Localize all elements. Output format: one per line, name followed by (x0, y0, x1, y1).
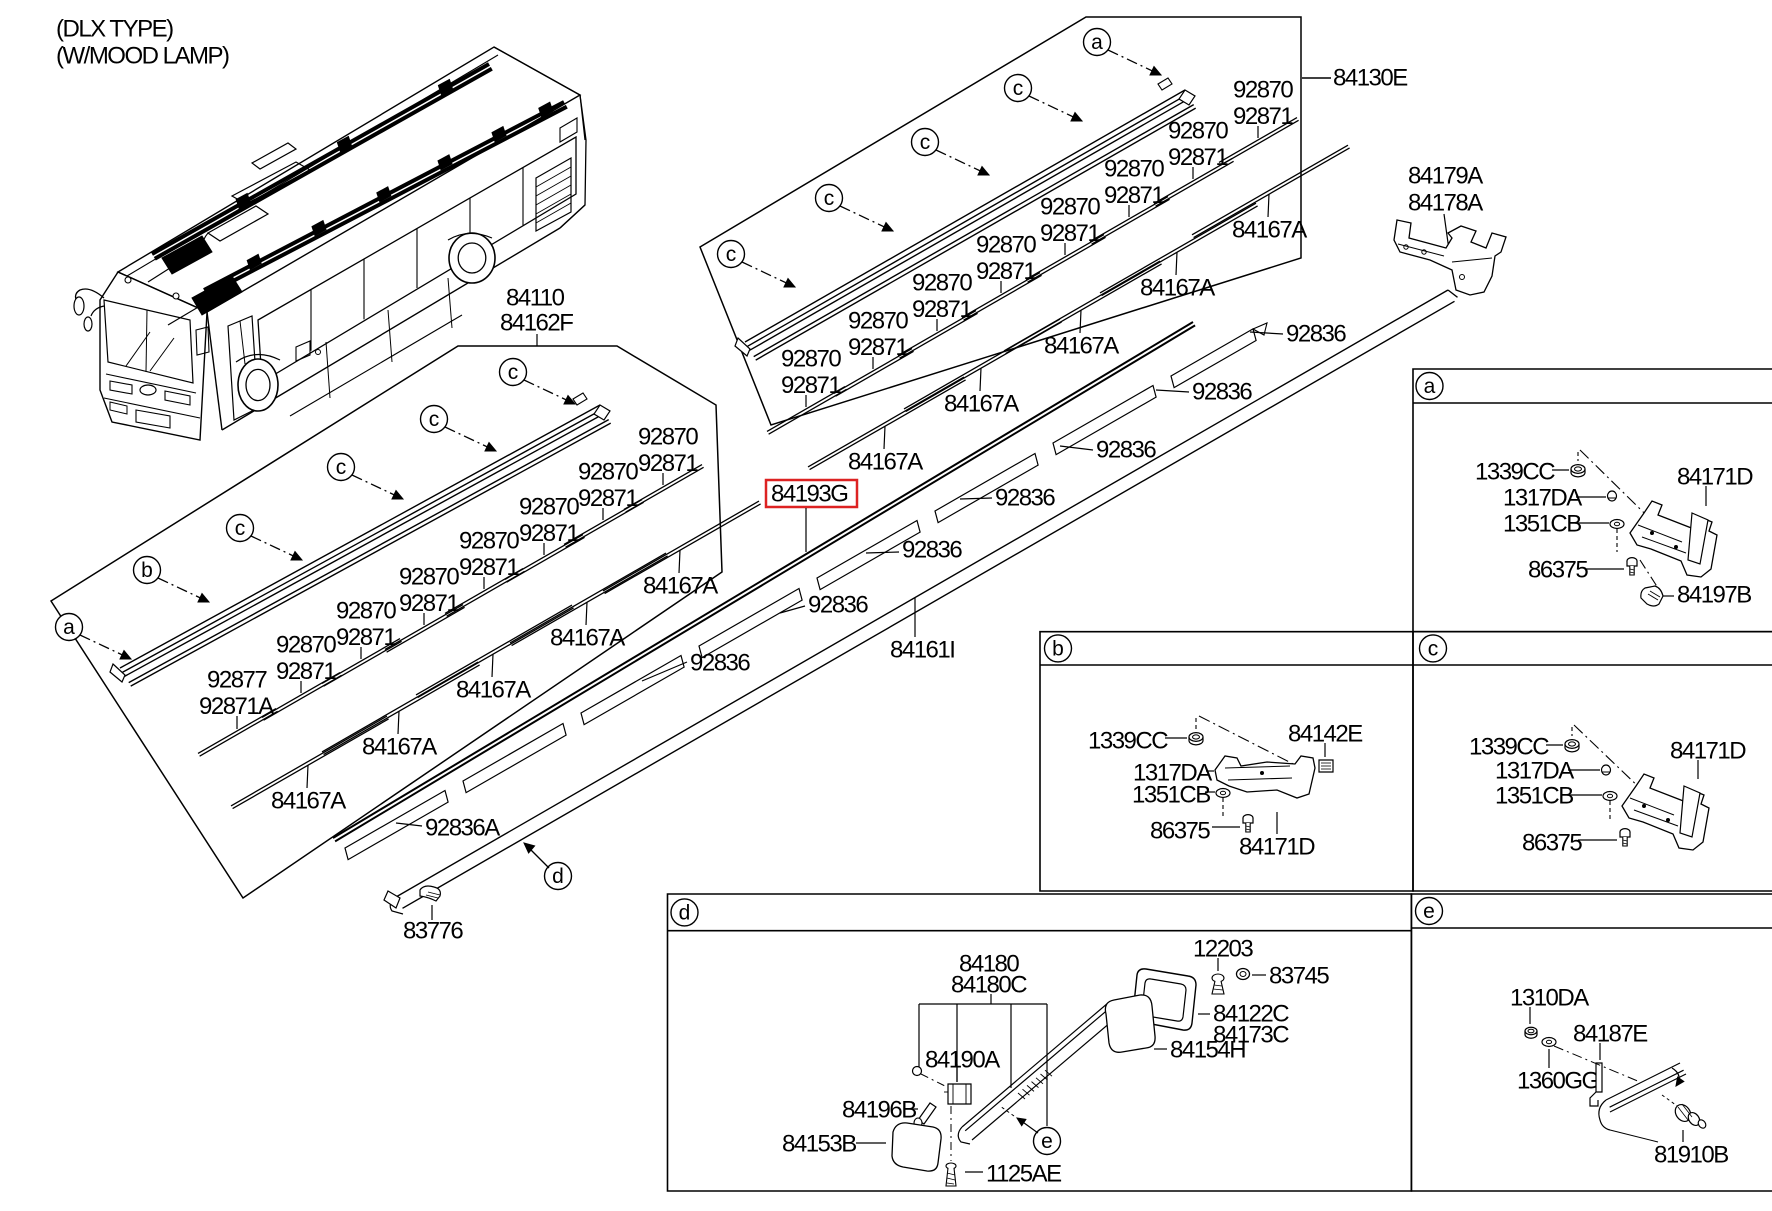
svg-text:92836: 92836 (1096, 437, 1156, 464)
svg-text:92836: 92836 (902, 537, 962, 564)
svg-text:84154H: 84154H (1170, 1037, 1245, 1064)
svg-text:92870: 92870 (912, 270, 972, 297)
svg-text:86375: 86375 (1522, 830, 1582, 857)
svg-text:1339CC: 1339CC (1475, 459, 1555, 486)
svg-text:84193G: 84193G (771, 481, 847, 508)
svg-text:84167A: 84167A (848, 449, 923, 476)
svg-text:86375: 86375 (1528, 557, 1588, 584)
svg-text:83745: 83745 (1269, 963, 1329, 990)
svg-text:84162F: 84162F (500, 310, 573, 337)
svg-text:92871: 92871 (912, 296, 972, 323)
svg-text:c: c (429, 408, 440, 431)
svg-text:92870: 92870 (1104, 156, 1164, 183)
svg-text:92836: 92836 (690, 650, 750, 677)
svg-text:92870: 92870 (976, 232, 1036, 259)
svg-text:84197B: 84197B (1677, 582, 1751, 609)
svg-text:e: e (1041, 1130, 1053, 1153)
svg-text:92836: 92836 (1286, 321, 1346, 348)
svg-text:84167A: 84167A (1044, 333, 1119, 360)
svg-text:a: a (1424, 375, 1436, 398)
svg-text:92836A: 92836A (425, 815, 500, 842)
svg-text:92836: 92836 (808, 592, 868, 619)
svg-text:84179A: 84179A (1408, 163, 1483, 190)
svg-text:84167A: 84167A (362, 734, 437, 761)
svg-text:84161I: 84161I (890, 637, 954, 664)
svg-text:b: b (141, 559, 153, 582)
svg-text:92871: 92871 (276, 658, 336, 685)
svg-text:92870: 92870 (276, 632, 336, 659)
svg-text:d: d (552, 865, 564, 888)
svg-text:92871: 92871 (781, 372, 841, 399)
svg-text:1351CB: 1351CB (1503, 511, 1581, 538)
svg-text:(W/MOOD LAMP): (W/MOOD LAMP) (56, 43, 229, 70)
svg-text:92871: 92871 (1040, 220, 1100, 247)
svg-text:81910B: 81910B (1654, 1142, 1728, 1169)
svg-text:84167A: 84167A (271, 788, 346, 815)
svg-text:92871: 92871 (1233, 103, 1293, 130)
svg-text:84167A: 84167A (1140, 275, 1215, 302)
svg-text:84171D: 84171D (1670, 738, 1746, 765)
svg-text:84153B: 84153B (782, 1131, 856, 1158)
svg-text:1339CC: 1339CC (1469, 734, 1549, 761)
svg-text:1317DA: 1317DA (1503, 485, 1582, 512)
svg-text:84171D: 84171D (1239, 834, 1315, 861)
svg-text:92836: 92836 (1192, 379, 1252, 406)
svg-text:92870: 92870 (519, 494, 579, 521)
svg-text:84167A: 84167A (550, 625, 625, 652)
svg-text:92870: 92870 (848, 308, 908, 335)
svg-text:86375: 86375 (1150, 818, 1210, 845)
svg-text:92871: 92871 (848, 334, 908, 361)
svg-text:84110: 84110 (506, 285, 565, 312)
svg-text:1339CC: 1339CC (1088, 728, 1168, 755)
svg-text:92871: 92871 (1168, 144, 1228, 171)
svg-text:92870: 92870 (578, 459, 638, 486)
svg-text:92871: 92871 (976, 258, 1036, 285)
svg-text:c: c (1428, 637, 1439, 660)
svg-text:84167A: 84167A (1232, 217, 1307, 244)
svg-text:c: c (726, 243, 737, 266)
svg-text:92871: 92871 (459, 554, 519, 581)
svg-text:84196B: 84196B (842, 1097, 916, 1124)
svg-text:92836: 92836 (995, 485, 1055, 512)
svg-text:d: d (679, 901, 691, 924)
svg-text:1310DA: 1310DA (1510, 985, 1589, 1012)
svg-text:92871: 92871 (399, 590, 459, 617)
svg-text:92871: 92871 (638, 450, 698, 477)
svg-text:92871: 92871 (336, 624, 396, 651)
svg-text:c: c (336, 456, 347, 479)
svg-text:92870: 92870 (1168, 118, 1228, 145)
svg-text:84190A: 84190A (925, 1047, 1000, 1074)
svg-text:1351CB: 1351CB (1132, 782, 1210, 809)
svg-text:84178A: 84178A (1408, 190, 1483, 217)
svg-text:1125AE: 1125AE (986, 1161, 1061, 1188)
svg-text:83776: 83776 (403, 918, 463, 945)
svg-text:92870: 92870 (781, 346, 841, 373)
svg-text:84187E: 84187E (1573, 1021, 1647, 1048)
svg-text:92871: 92871 (578, 485, 638, 512)
svg-text:84167A: 84167A (643, 573, 718, 600)
svg-text:1317DA: 1317DA (1495, 758, 1574, 785)
svg-text:c: c (824, 187, 835, 210)
svg-text:1351CB: 1351CB (1495, 783, 1573, 810)
svg-text:92877: 92877 (207, 667, 267, 694)
svg-text:84171D: 84171D (1677, 464, 1753, 491)
svg-text:84180C: 84180C (951, 972, 1027, 999)
svg-text:92870: 92870 (336, 598, 396, 625)
svg-text:a: a (63, 616, 75, 639)
svg-text:12203: 12203 (1193, 936, 1253, 963)
svg-text:92871: 92871 (519, 520, 579, 547)
svg-text:(DLX TYPE): (DLX TYPE) (56, 16, 173, 43)
svg-text:c: c (508, 361, 519, 384)
svg-text:92870: 92870 (459, 528, 519, 555)
svg-text:84130E: 84130E (1333, 65, 1407, 92)
svg-text:92870: 92870 (638, 424, 698, 451)
svg-text:1360GG: 1360GG (1517, 1068, 1599, 1095)
svg-text:c: c (1013, 77, 1024, 100)
svg-text:c: c (235, 517, 246, 540)
svg-text:92870: 92870 (1233, 77, 1293, 104)
svg-text:b: b (1052, 637, 1064, 660)
svg-text:92870: 92870 (399, 564, 459, 591)
svg-text:a: a (1091, 31, 1103, 54)
svg-text:c: c (920, 131, 931, 154)
svg-text:92871: 92871 (1104, 182, 1164, 209)
svg-text:84167A: 84167A (944, 391, 1019, 418)
svg-text:84167A: 84167A (456, 677, 531, 704)
svg-text:e: e (1423, 900, 1435, 923)
svg-text:92870: 92870 (1040, 194, 1100, 221)
